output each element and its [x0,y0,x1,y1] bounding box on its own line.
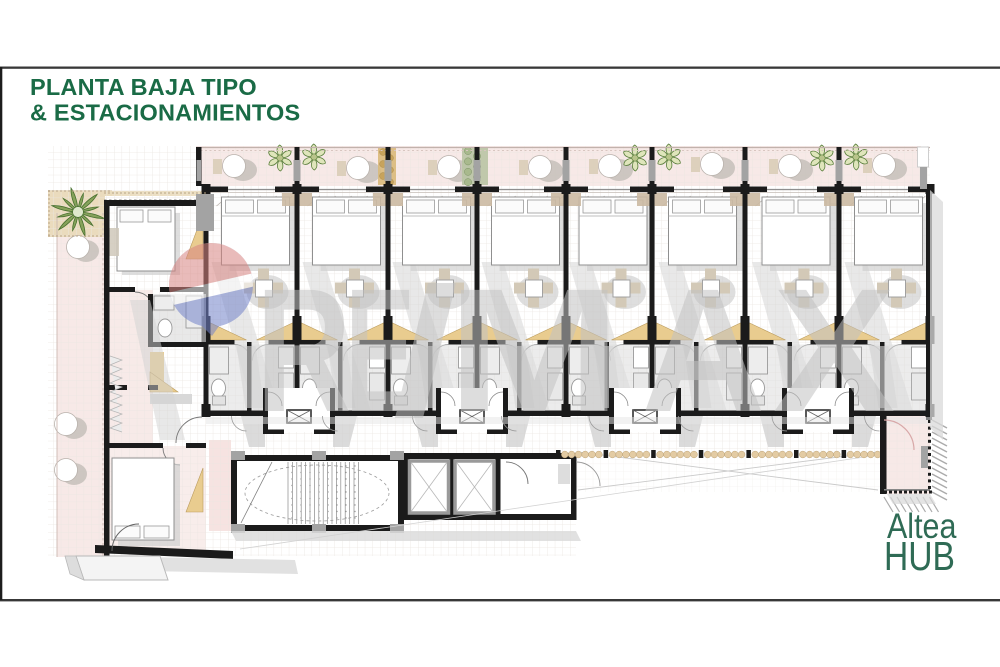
svg-text:PLANTA BAJA TIPO: PLANTA BAJA TIPO [30,74,257,100]
svg-text:A: A [641,251,766,448]
svg-text:M: M [447,252,621,449]
svg-text:X: X [773,252,895,449]
svg-text:HUB: HUB [884,533,955,579]
svg-text:R: R [256,251,351,448]
svg-text:E: E [345,252,415,448]
svg-text:& ESTACIONAMIENTOS: & ESTACIONAMIENTOS [30,100,300,126]
